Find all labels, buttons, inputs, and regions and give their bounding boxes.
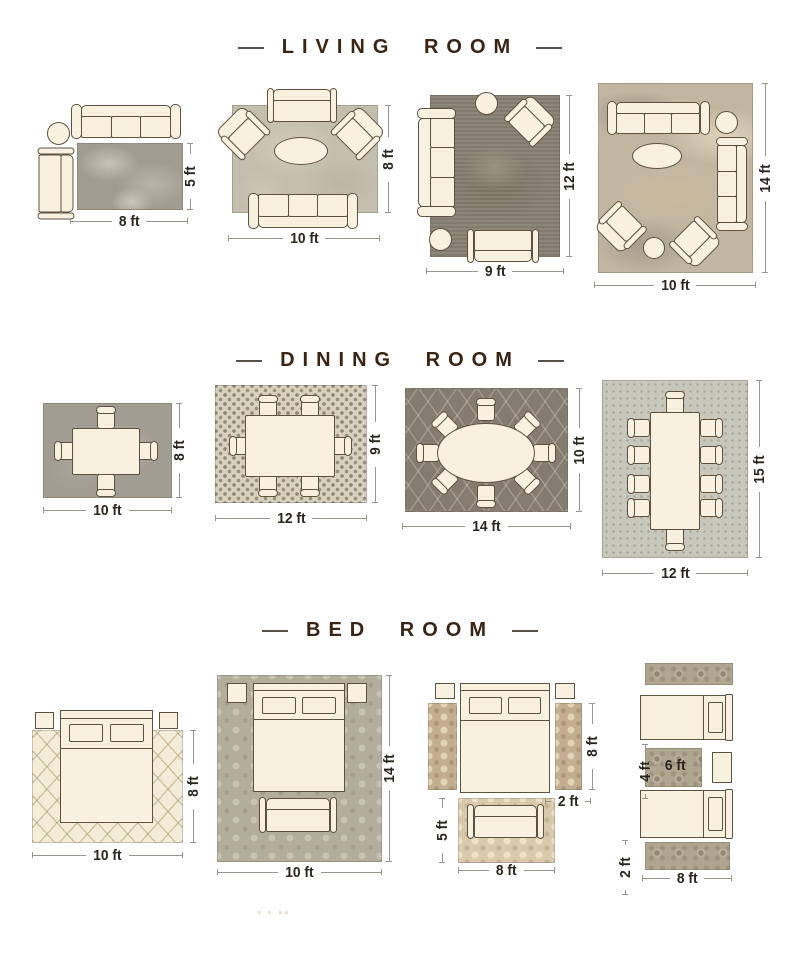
dimension-label: 8 ft (119, 214, 140, 229)
runner-rug (645, 842, 730, 870)
height-dimension: 12 ft (561, 95, 577, 257)
dimension-label: 10 ft (290, 231, 318, 246)
dining-chair (700, 446, 720, 464)
nightstand (435, 683, 455, 699)
bedroom-bench (468, 805, 543, 838)
dining-chair (630, 446, 650, 464)
loveseat (268, 89, 336, 122)
dining-table (650, 412, 700, 530)
bedroom-bench (260, 798, 336, 832)
dimension-label: 10 ft (93, 848, 121, 863)
dining-table (245, 415, 335, 477)
height-dimension: 8 ft (380, 105, 396, 213)
dimension-label: 5 ft (183, 166, 198, 187)
oval-dining-table (437, 423, 535, 483)
title-dash (538, 360, 564, 362)
dimension-label: 8 ft (381, 149, 396, 170)
height-dimension: 5 ft (182, 143, 198, 210)
dining-table (72, 428, 140, 475)
bed (460, 683, 550, 793)
width-dimension: 8 ft (642, 870, 732, 886)
section-title-bed-room: BED ROOM (0, 619, 800, 642)
round-side-table (475, 92, 498, 115)
dimension-label: 15 ft (752, 455, 767, 483)
height-dimension: 8 ft (185, 730, 201, 843)
width-dimension: 14 ft (402, 518, 571, 534)
living-room-rug-8x5 (77, 143, 183, 210)
dimension-label: 12 ft (661, 566, 689, 581)
dimension-label: 8 ft (172, 440, 187, 461)
dimension-label: 6 ft (665, 758, 686, 773)
dining-chair (477, 485, 495, 505)
dining-chair (301, 474, 319, 494)
dimension-label: 10 ft (661, 278, 689, 293)
section-title-dining-room: DINING ROOM (0, 349, 800, 372)
round-ottoman (429, 228, 452, 251)
sofa-3-seat (717, 138, 747, 230)
dimension-label: 14 ft (382, 754, 397, 782)
width-dimension: 10 ft (32, 847, 183, 863)
width-dimension: 10 ft (217, 864, 382, 880)
dining-chair (97, 474, 115, 494)
sofa-3-seat (73, 105, 179, 138)
section-title-text: BED ROOM (306, 619, 494, 642)
dining-chair (533, 444, 553, 462)
dimension-label: 8 ft (677, 871, 698, 886)
width-dimension: 8 ft (458, 862, 555, 878)
foot-rug-height-dimension: 5 ft (434, 798, 450, 863)
height-dimension: 14 ft (757, 83, 773, 273)
round-side-table (47, 122, 70, 145)
dining-chair (630, 499, 650, 517)
dimension-label: 10 ft (572, 436, 587, 464)
dimension-label: 9 ft (485, 264, 506, 279)
title-dash (536, 47, 562, 49)
chaise-sofa (39, 149, 74, 219)
sofa-3-seat (418, 110, 455, 215)
width-dimension: 10 ft (228, 230, 380, 246)
width-dimension: 10 ft (43, 502, 172, 518)
dimension-label: 9 ft (368, 434, 383, 455)
dining-chair (259, 474, 277, 494)
dining-chair (666, 394, 684, 414)
oval-coffee-table (632, 143, 682, 169)
nightstand (35, 712, 54, 729)
width-dimension: 9 ft (426, 263, 564, 279)
section-title-living-room: LIVING ROOM (0, 36, 800, 59)
height-dimension: 8 ft (171, 403, 187, 498)
dimension-label: 14 ft (758, 164, 773, 192)
sofa-3-seat (608, 102, 708, 134)
dining-chair (666, 528, 684, 548)
section-title-text: LIVING ROOM (282, 36, 518, 59)
bed (60, 710, 153, 823)
dimension-label: 8 ft (496, 863, 517, 878)
width-dimension: 12 ft (215, 510, 367, 526)
title-dash (238, 47, 264, 49)
title-dash (512, 630, 538, 632)
round-side-table (715, 111, 738, 134)
runner-height-dimension: 8 ft (584, 703, 600, 790)
width-dimension: 10 ft (594, 277, 756, 293)
runner-width-dimension: 2 ft (545, 793, 591, 809)
dimension-label: 8 ft (585, 736, 600, 757)
dimension-label: 12 ft (562, 162, 577, 190)
middle-rug-width-dimension: 6 ft (649, 757, 701, 773)
dimension-label: 12 ft (277, 511, 305, 526)
dining-chair (477, 401, 495, 421)
loveseat (468, 230, 538, 262)
dining-chair (700, 419, 720, 437)
dimension-label: 2 ft (558, 794, 579, 809)
oval-coffee-table (274, 137, 328, 165)
runner-width-dimension: 2 ft (617, 840, 633, 872)
width-dimension: 12 ft (602, 565, 748, 581)
nightstand (159, 712, 178, 729)
runner-rug (645, 663, 733, 685)
dining-chair (97, 409, 115, 429)
sofa-3-seat (250, 194, 356, 228)
nightstand (555, 683, 575, 699)
dining-chair (419, 444, 439, 462)
height-dimension: 15 ft (751, 380, 767, 558)
dimension-label: 5 ft (435, 820, 450, 841)
title-dash (236, 360, 262, 362)
height-dimension: 10 ft (571, 388, 587, 512)
dining-chair (630, 419, 650, 437)
round-ottoman (643, 237, 665, 259)
bedside-runner-rug (555, 703, 582, 790)
bed (253, 683, 345, 792)
width-dimension: 8 ft (70, 213, 188, 229)
dining-chair (700, 499, 720, 517)
dimension-label: 8 ft (186, 776, 201, 797)
nightstand (712, 752, 732, 783)
rug-size-guide: LIVING ROOM 8 ft 5 ft 10 ft 8 ft 9 ft 12… (0, 0, 800, 978)
dining-chair (700, 475, 720, 493)
dimension-label: 10 ft (93, 503, 121, 518)
dimension-label: 2 ft (618, 857, 633, 878)
height-dimension: 14 ft (381, 675, 397, 862)
section-title-text: DINING ROOM (280, 349, 520, 372)
height-dimension: 9 ft (367, 385, 383, 503)
nightstand (227, 683, 247, 703)
twin-bed (640, 790, 732, 838)
title-dash (262, 630, 288, 632)
nightstand (347, 683, 367, 703)
bedside-runner-rug (428, 703, 457, 790)
dining-chair (630, 475, 650, 493)
dimension-label: 14 ft (472, 519, 500, 534)
dimension-label: 10 ft (285, 865, 313, 880)
twin-bed (640, 695, 732, 740)
